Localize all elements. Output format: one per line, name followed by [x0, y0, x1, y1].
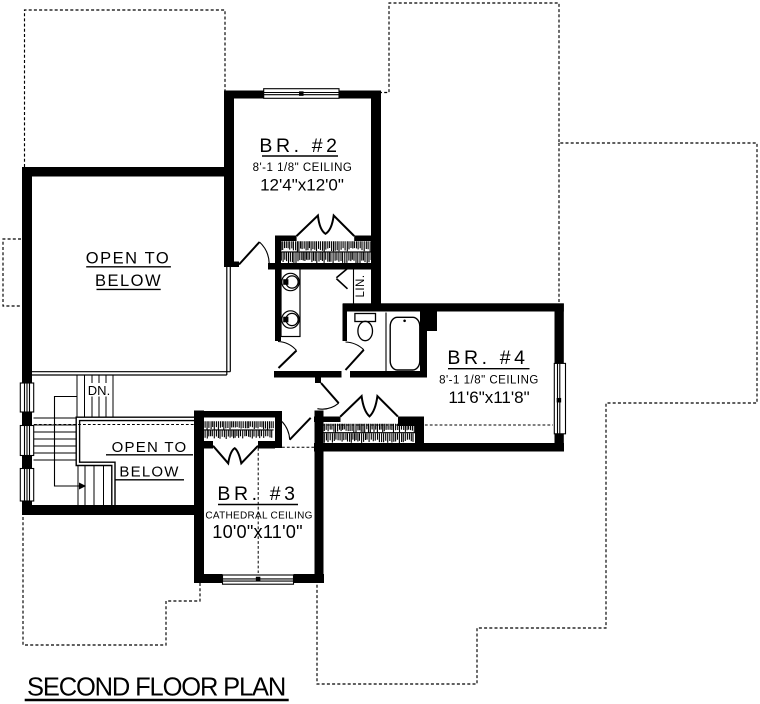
svg-text:BR. #4: BR. #4 — [447, 347, 528, 369]
svg-text:10'0"x11'0": 10'0"x11'0" — [212, 522, 303, 542]
svg-text:8'-1 1/8" CEILING: 8'-1 1/8" CEILING — [253, 162, 353, 174]
svg-text:CATHEDRAL CEILING: CATHEDRAL CEILING — [205, 511, 312, 522]
svg-text:11'6"x11'8": 11'6"x11'8" — [448, 388, 529, 407]
svg-text:OPEN TO: OPEN TO — [86, 250, 170, 268]
svg-text:BELOW: BELOW — [119, 464, 179, 481]
svg-text:8'-1 1/8" CEILING: 8'-1 1/8" CEILING — [439, 374, 539, 386]
svg-text:BR. #3: BR. #3 — [217, 483, 298, 505]
svg-text:DN.: DN. — [88, 383, 110, 398]
svg-text:BR. #2: BR. #2 — [259, 135, 340, 157]
svg-text:SECOND FLOOR PLAN: SECOND FLOOR PLAN — [27, 674, 285, 702]
svg-text:BELOW: BELOW — [95, 272, 162, 290]
svg-text:OPEN TO: OPEN TO — [112, 439, 188, 456]
svg-text:12'4"x12'0": 12'4"x12'0" — [260, 176, 344, 195]
svg-text:LIN.: LIN. — [355, 274, 367, 297]
